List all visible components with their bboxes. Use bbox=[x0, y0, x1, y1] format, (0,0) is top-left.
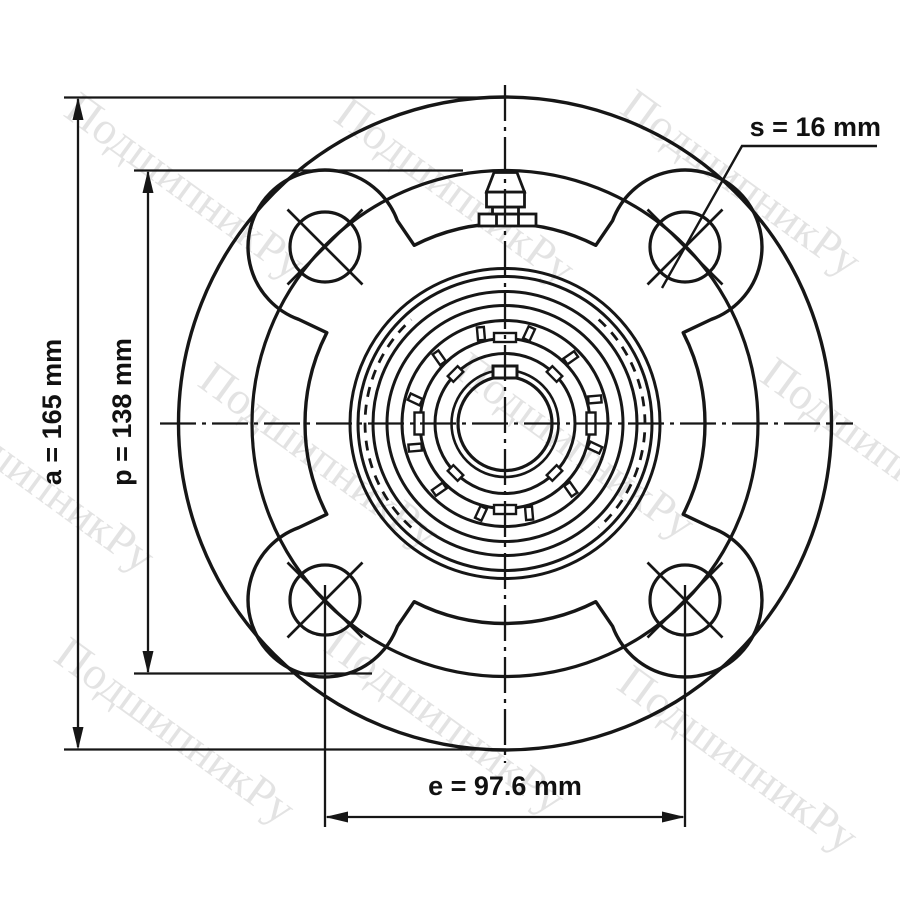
watermark-text: ПодшипникРу bbox=[326, 87, 585, 295]
grease-fitting-base bbox=[479, 214, 536, 226]
dimension-p-label: p = 138 mm bbox=[107, 338, 137, 486]
collar-knurl-tab bbox=[588, 395, 602, 403]
collar-step-notch bbox=[448, 465, 464, 481]
dimension-e-arrow-right bbox=[662, 812, 685, 823]
dimension-e-label: e = 97.6 mm bbox=[428, 771, 582, 801]
collar-knurl-tab bbox=[475, 506, 487, 521]
collar-step-notch bbox=[547, 465, 563, 481]
collar-knurl-tab bbox=[564, 482, 577, 497]
technical-drawing-page: ПодшипникРу ПодшипникРу ПодшипникРу Подш… bbox=[0, 0, 900, 900]
collar-knurl-tab bbox=[563, 351, 578, 364]
dimension-a-arrow-down bbox=[73, 727, 84, 750]
watermark-text: ПодшипникРу bbox=[46, 627, 305, 835]
grease-fitting bbox=[479, 173, 536, 227]
collar-knurl-tab bbox=[432, 483, 447, 496]
collar-knurl-tab bbox=[408, 394, 423, 406]
watermark-text: ПодшипникРу bbox=[609, 655, 868, 863]
collar-knurl-tab bbox=[523, 326, 535, 341]
collar-knurl-tab bbox=[477, 327, 485, 341]
collar-knurl-tab bbox=[433, 350, 446, 365]
collar-knurl-tab bbox=[525, 507, 533, 521]
collar-step-notch bbox=[547, 366, 563, 382]
watermark-text: ПодшипникРу bbox=[752, 347, 900, 555]
collar-knurl-tab bbox=[408, 444, 422, 452]
watermark-text: ПодшипникРу bbox=[0, 375, 165, 583]
dimension-s-label: s = 16 mm bbox=[750, 112, 881, 142]
bearing-flange-drawing: ПодшипникРу ПодшипникРу ПодшипникРу Подш… bbox=[0, 0, 900, 900]
dimension-e-arrow-left bbox=[325, 812, 348, 823]
dimension-a-label: a = 165 mm bbox=[37, 339, 67, 485]
dimension-p-arrow-down bbox=[143, 651, 154, 674]
